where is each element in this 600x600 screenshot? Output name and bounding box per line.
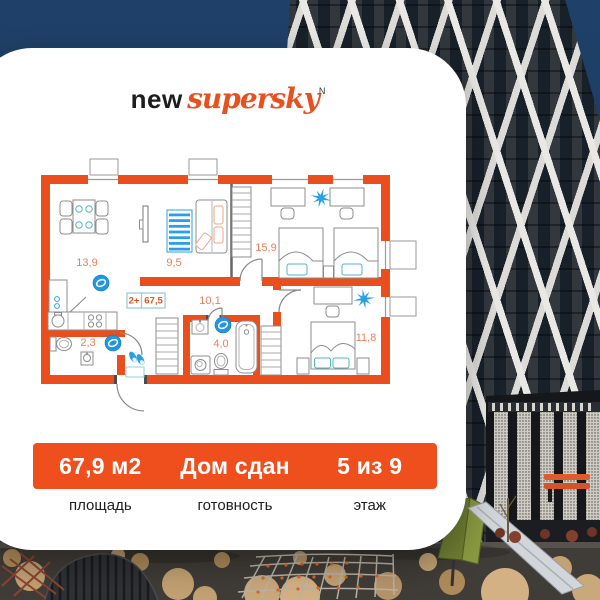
hall-wardrobe [156,318,178,374]
wc-toilet [50,337,72,351]
floor-caption: этаж [302,497,437,514]
bed [279,228,378,278]
entry-door-arc [117,384,144,411]
room-label-hallway: 10,1 [199,295,220,307]
room-label-bedroom-small: 11,8 [356,332,377,344]
readiness-caption: готовность [168,497,303,514]
area-badge: 2+ 67,5 [127,293,165,308]
kitchen-sink [52,315,64,327]
summary-bar: 67,9 м2 Дом сдан 5 из 9 [33,443,437,489]
badge-rooms: 2+ [129,296,140,307]
dining-table [60,200,108,234]
floor-value: 5 из 9 [302,453,437,480]
doormat [126,367,144,377]
floor-plan: 2+ 67,5 13,9 9,5 15,9 10,1 4,0 2,3 11,8 [30,155,430,415]
bathtub [236,321,257,373]
listing-card: new superskyN [0,48,466,550]
camera-360-icon[interactable] [105,335,121,351]
bedroom-wardrobe [261,326,281,375]
room-label-bedroom-large: 15,9 [255,242,276,254]
bath-toilet [214,354,228,376]
logo-word-new: new [131,84,183,114]
wc-sink [81,352,93,365]
area-value: 67,9 м2 [33,453,168,480]
wardrobe [232,187,251,257]
room-label-living: 13,9 [76,257,97,269]
desk-small-bedroom [314,287,352,317]
room-label-wc: 2,3 [80,337,95,349]
sofa [195,200,227,253]
camera-360-icon[interactable] [93,275,109,291]
area-caption: площадь [33,497,168,514]
bath-sink [192,320,208,334]
brand-logo: new superskyN [0,82,466,115]
double-bed [297,322,369,374]
summary-captions: площадь готовность этаж [33,497,437,514]
badge-area: 67,5 [144,296,163,307]
readiness-value: Дом сдан [168,453,303,480]
room-label-bathroom: 4,0 [213,338,228,350]
washing-machine [191,356,210,374]
rug [167,210,192,252]
room-label-lounge: 9,5 [166,257,181,269]
sparkle-icon [352,288,377,311]
logo-trademark: N [319,86,326,96]
camera-360-icon[interactable] [215,317,231,333]
tv-stand [140,206,149,242]
logo-word-supersky: supersky [187,82,319,115]
